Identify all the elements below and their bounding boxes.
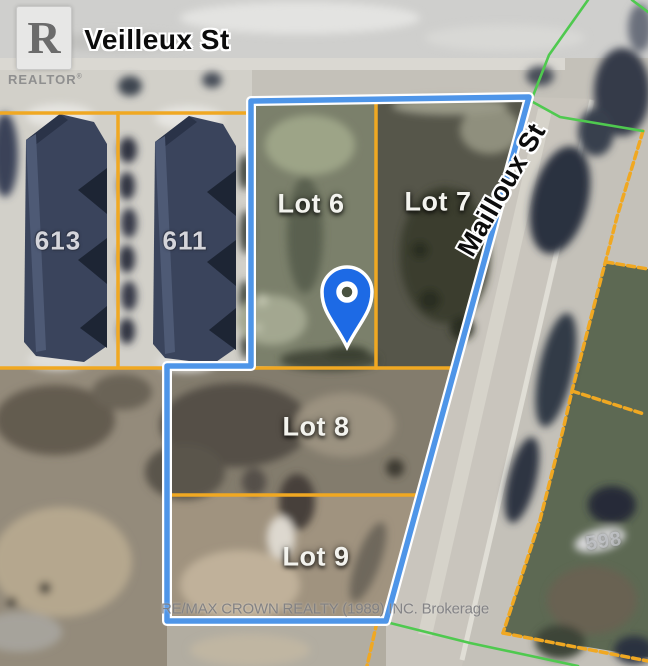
realtor-logo-letter: R	[27, 15, 60, 61]
building-number-611: 611	[163, 226, 208, 257]
lot-8-label: Lot 8	[283, 412, 350, 443]
street-label-veilleux: Veilleux St	[84, 24, 230, 56]
lot-9-label: Lot 9	[283, 542, 350, 573]
realtor-logo: R REALTOR®	[8, 6, 80, 87]
registered-trademark-symbol: ®	[77, 74, 83, 81]
realtor-logo-box: R	[16, 6, 72, 70]
realtor-logo-wordmark: REALTOR®	[8, 72, 80, 87]
listing-map-screenshot: R REALTOR® Veilleux St Mailloux St Lot 6…	[0, 0, 648, 666]
building-number-613: 613	[35, 226, 81, 257]
lot-6-label: Lot 6	[278, 189, 345, 220]
brokerage-watermark: RE/MAX CROWN REALTY (1989) INC. Brokerag…	[161, 601, 489, 618]
lot-7-label: Lot 7	[405, 187, 472, 218]
